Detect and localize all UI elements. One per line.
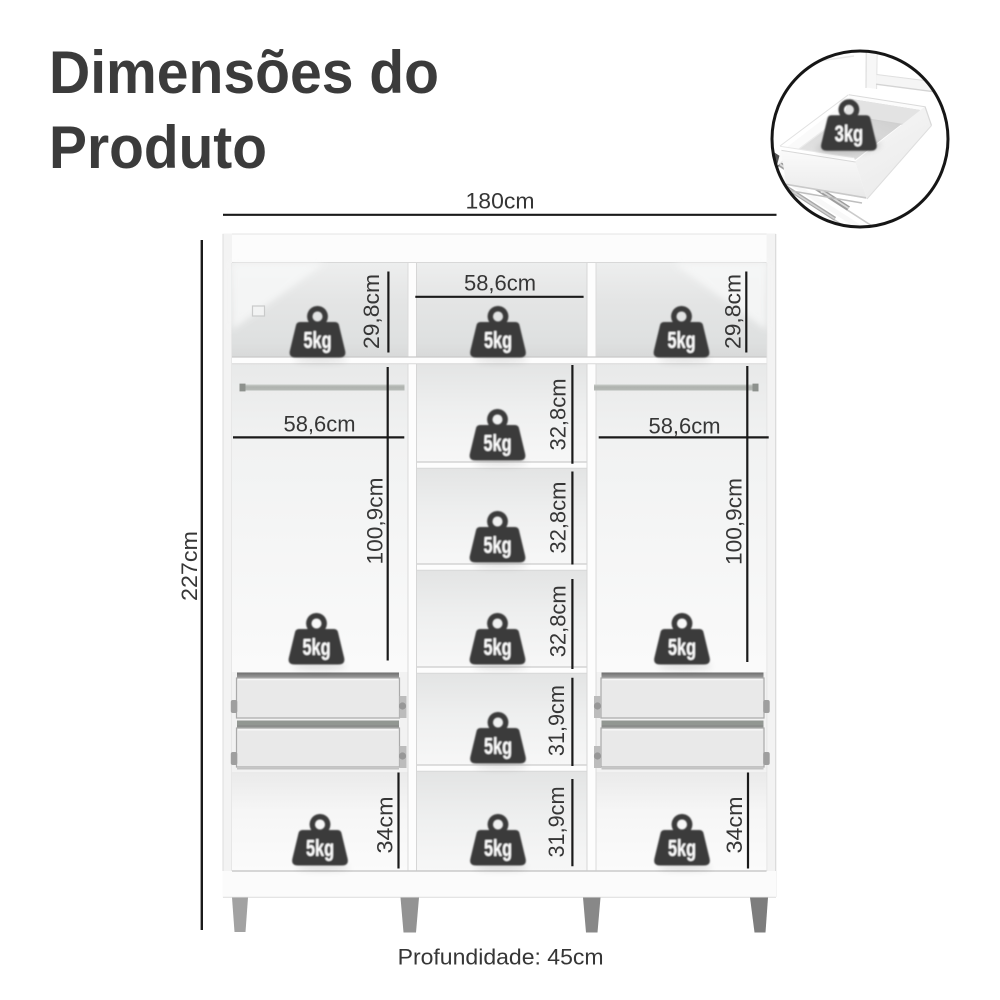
- svg-text:58,6cm: 58,6cm: [464, 270, 536, 295]
- svg-text:31,9cm: 31,9cm: [544, 685, 569, 756]
- svg-text:Produto: Produto: [49, 114, 267, 181]
- svg-text:100,9cm: 100,9cm: [722, 478, 747, 565]
- svg-text:58,6cm: 58,6cm: [284, 412, 356, 437]
- svg-text:Dimensões do: Dimensões do: [49, 39, 439, 106]
- svg-text:34cm: 34cm: [373, 797, 398, 854]
- svg-text:58,6cm: 58,6cm: [649, 414, 721, 439]
- svg-text:180cm: 180cm: [466, 188, 535, 213]
- svg-text:29,8cm: 29,8cm: [359, 274, 384, 349]
- svg-text:32,8cm: 32,8cm: [545, 379, 570, 451]
- svg-text:Profundidade: 45cm: Profundidade: 45cm: [398, 945, 604, 970]
- svg-text:100,9cm: 100,9cm: [362, 478, 387, 565]
- svg-text:34cm: 34cm: [722, 797, 747, 854]
- svg-text:31,9cm: 31,9cm: [544, 787, 569, 858]
- svg-text:32,8cm: 32,8cm: [545, 585, 570, 657]
- svg-text:227cm: 227cm: [177, 531, 202, 601]
- svg-text:29,8cm: 29,8cm: [721, 274, 746, 349]
- svg-text:32,8cm: 32,8cm: [545, 482, 570, 554]
